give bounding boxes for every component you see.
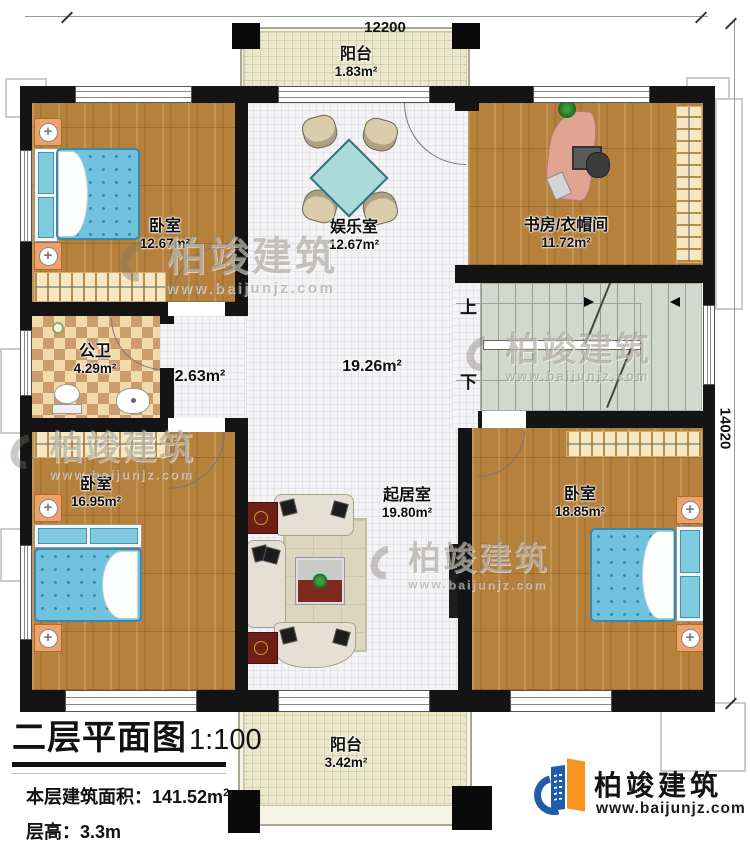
sofa	[246, 540, 286, 628]
tv	[449, 544, 458, 618]
bed-blanket	[642, 531, 674, 619]
wall	[612, 690, 715, 712]
wall	[458, 428, 472, 690]
title-block: 二层平面图 1:100 本层建筑面积：141.52m2 层高：3.3m	[12, 710, 262, 844]
desk-chair	[586, 152, 610, 178]
room-label-hallway: 2.63m²	[152, 368, 248, 386]
stair-guide-line	[456, 303, 642, 304]
wall	[455, 265, 715, 283]
window	[278, 690, 430, 712]
wall	[526, 411, 715, 428]
window	[533, 86, 650, 103]
wardrobe	[34, 430, 166, 458]
room-label-bedroom-top-left: 卧室12.67m²	[115, 218, 215, 251]
room-label-balcony-bottom: 阳台3.42m²	[294, 737, 398, 770]
stair-up-label: 上	[460, 293, 477, 318]
logo-building-orange-icon	[567, 758, 585, 811]
logo-url-text: www.baijunjz.com	[596, 800, 746, 818]
stair-direction-arrow	[670, 297, 680, 307]
side-table	[244, 502, 278, 534]
plan-title: 二层平面图	[12, 710, 187, 759]
logo-building-blue-icon	[551, 765, 565, 811]
window	[703, 305, 715, 385]
toilet-tank	[52, 404, 82, 414]
room-label-bedroom-bottom-left: 卧室16.95m²	[46, 476, 146, 509]
coffee-table	[296, 558, 344, 604]
window	[20, 330, 32, 396]
wall	[225, 302, 248, 316]
dimension-line-top	[25, 16, 708, 17]
wall	[20, 242, 32, 330]
wall	[478, 411, 482, 428]
wall	[160, 316, 174, 324]
dimension-tick	[695, 11, 707, 23]
window	[20, 545, 32, 640]
sofa	[274, 494, 354, 536]
room-label-balcony-top: 阳台1.83m²	[306, 46, 406, 79]
wall	[430, 86, 533, 103]
wall	[455, 103, 479, 111]
room-label-entertainment: 娱乐室12.67m²	[304, 219, 404, 252]
room-label-study: 书房/衣帽间11.72m²	[486, 217, 646, 250]
company-logo: 柏竣建筑 www.baijunjz.com	[534, 758, 748, 832]
room-label-living-room: 起居室19.80m²	[355, 487, 459, 520]
floor-area-line: 本层建筑面积：141.52m2	[26, 783, 262, 809]
ceiling-lamp	[52, 322, 64, 334]
dimension-tick	[725, 17, 737, 29]
bed-headboard	[676, 526, 704, 622]
floor-height-line: 层高：3.3m	[26, 818, 262, 844]
sink-drain	[131, 398, 136, 403]
wall	[235, 86, 248, 303]
side-table	[244, 632, 278, 664]
bed-headboard	[34, 148, 58, 242]
window	[278, 86, 430, 103]
bed-blanket	[102, 551, 138, 619]
logo-brand-text: 柏竣建筑	[594, 764, 722, 804]
window	[65, 690, 197, 712]
wall	[32, 302, 168, 316]
nightstand	[34, 242, 62, 270]
plan-scale: 1:100	[189, 724, 262, 757]
column	[452, 23, 480, 49]
nightstand	[34, 118, 62, 146]
window	[20, 150, 32, 242]
wall	[430, 690, 510, 712]
stair-guide-line	[456, 380, 642, 381]
column	[452, 786, 492, 830]
dimension-tick	[61, 11, 73, 23]
column	[232, 23, 260, 49]
wall	[20, 640, 32, 712]
room-label-bedroom-bottom-right: 卧室18.85m²	[528, 486, 632, 519]
stair-handrail	[483, 340, 641, 350]
stair-down-label: 下	[460, 368, 477, 393]
wardrobe	[566, 431, 702, 457]
nightstand	[676, 496, 704, 524]
title-underline	[12, 762, 226, 767]
wall	[235, 418, 248, 690]
window	[510, 690, 612, 712]
floor-plan-canvas: 12200 14020 上 下	[0, 0, 750, 837]
stair-direction-arrow	[584, 297, 594, 307]
window	[75, 86, 192, 103]
dimension-line-right	[734, 20, 735, 702]
wardrobe	[34, 272, 166, 302]
toilet	[54, 384, 80, 404]
exterior-ledge	[715, 98, 743, 310]
room-label-bathroom: 公卫4.29m²	[45, 343, 145, 376]
sofa	[274, 622, 356, 668]
wardrobe	[676, 106, 702, 263]
wall	[703, 385, 715, 712]
dimension-top-value: 12200	[342, 19, 428, 36]
wall	[32, 418, 168, 432]
bed-headboard	[34, 524, 142, 548]
room-label-hall: 19.26m²	[320, 358, 424, 376]
wall	[197, 690, 278, 712]
title-underline-thin	[12, 773, 226, 774]
nightstand	[676, 624, 704, 652]
dimension-right-value: 14020	[717, 399, 734, 459]
wall	[20, 396, 32, 545]
wall	[20, 86, 32, 150]
nightstand	[34, 624, 62, 652]
